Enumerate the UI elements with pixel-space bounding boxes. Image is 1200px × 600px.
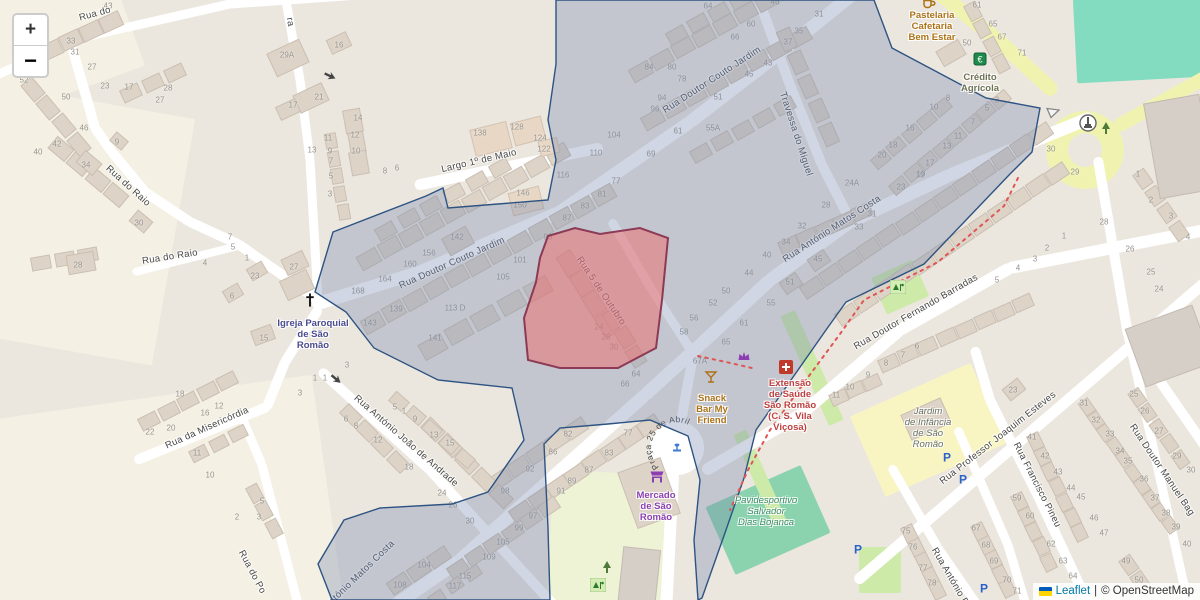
market-icon xyxy=(650,471,665,484)
poi-label-line: Dias Bojanca xyxy=(735,517,797,528)
poi-label-pastelaria: PastelariaCafetariaBem Estar xyxy=(909,10,956,43)
attribution-bar: Leaflet | © OpenStreetMap xyxy=(1033,583,1200,600)
tree-icon xyxy=(602,561,612,573)
poi-label-credito: CréditoAgrícola xyxy=(961,72,999,94)
yield-icon xyxy=(1046,107,1060,120)
poi-label-line: Mercado xyxy=(636,490,675,501)
poi-label-line: Cafetaria xyxy=(909,21,956,32)
map-canvas[interactable]: 4333312723172827525046424093430287514236… xyxy=(0,0,1200,600)
parking-icon: P xyxy=(957,473,969,485)
poi-label-line: Bem Estar xyxy=(909,32,956,43)
poi-label-line: Bar My xyxy=(696,404,728,415)
bank-icon: € xyxy=(974,53,987,66)
poi-label-line: Romão xyxy=(636,512,675,523)
cocktail-icon xyxy=(705,371,718,384)
zoom-in-button[interactable]: + xyxy=(14,15,47,46)
hospital-icon xyxy=(779,360,793,374)
fountain-icon xyxy=(670,441,685,456)
parking-icon: P xyxy=(941,451,953,463)
poi-label-line: Extensão xyxy=(764,378,816,389)
crown-icon xyxy=(738,351,751,361)
oneway-icon xyxy=(329,372,343,386)
poi-label-line: Crédito xyxy=(961,72,999,83)
svg-text:P: P xyxy=(980,582,988,594)
poi-label-line: Salvador xyxy=(735,506,797,517)
poi-label-igreja: Igreja Paroquialde SãoRomão xyxy=(277,318,348,351)
church-icon xyxy=(303,293,318,308)
poi-label-line: São Romão xyxy=(764,400,816,411)
attribution-separator: | xyxy=(1094,585,1097,597)
poi-label-line: Viçosa) xyxy=(764,422,816,433)
zoom-out-button[interactable]: − xyxy=(14,46,47,76)
oneway-icon xyxy=(323,70,337,82)
playground-icon xyxy=(590,578,606,592)
osm-copyright: © OpenStreetMap xyxy=(1101,585,1194,597)
poi-label-line: de São xyxy=(905,428,951,439)
svg-text:P: P xyxy=(943,451,951,463)
zoom-control: + − xyxy=(12,13,49,78)
poi-label-line: Pavidesportivo xyxy=(735,495,797,506)
poi-label-line: de São xyxy=(277,329,348,340)
poi-label-line: Jardim xyxy=(905,406,951,417)
poi-label-line: Romão xyxy=(277,340,348,351)
poi-label-saude: Extensãode SaúdeSão Romão(C. S. VilaViço… xyxy=(764,378,816,433)
poi-label-line: Romão xyxy=(905,439,951,450)
leaflet-link[interactable]: Leaflet xyxy=(1056,585,1091,597)
parking-icon: P xyxy=(852,543,864,555)
poi-label-line: Pastelaria xyxy=(909,10,956,21)
poi-label-line: Friend xyxy=(696,415,728,426)
poi-label-line: Igreja Paroquial xyxy=(277,318,348,329)
poi-label-line: (C. S. Vila xyxy=(764,411,816,422)
poi-label-line: de São xyxy=(636,501,675,512)
poi-label-line: de Saúde xyxy=(764,389,816,400)
parking-icon: P xyxy=(978,582,990,594)
poi-layer: Igreja Paroquialde SãoRomãoPastelariaCaf… xyxy=(0,0,1200,600)
poi-label-snack: SnackBar MyFriend xyxy=(696,393,728,426)
poi-label-mercado: Mercadode SãoRomão xyxy=(636,490,675,523)
tree-icon xyxy=(1101,122,1111,134)
svg-text:€: € xyxy=(977,55,982,65)
poi-label-line: Agrícola xyxy=(961,83,999,94)
poi-label-line: de Infância xyxy=(905,417,951,428)
playground-icon xyxy=(890,280,906,294)
poi-label-jardim-infancia: Jardimde Infânciade SãoRomão xyxy=(905,406,951,450)
svg-text:P: P xyxy=(854,543,862,555)
monument-icon xyxy=(1079,114,1097,132)
svg-text:P: P xyxy=(959,473,967,485)
poi-label-line: Snack xyxy=(696,393,728,404)
poi-label-pavidesportivo: PavidesportivoSalvadorDias Bojanca xyxy=(735,495,797,528)
ukraine-flag-icon xyxy=(1039,587,1052,596)
cup-icon xyxy=(922,0,936,10)
